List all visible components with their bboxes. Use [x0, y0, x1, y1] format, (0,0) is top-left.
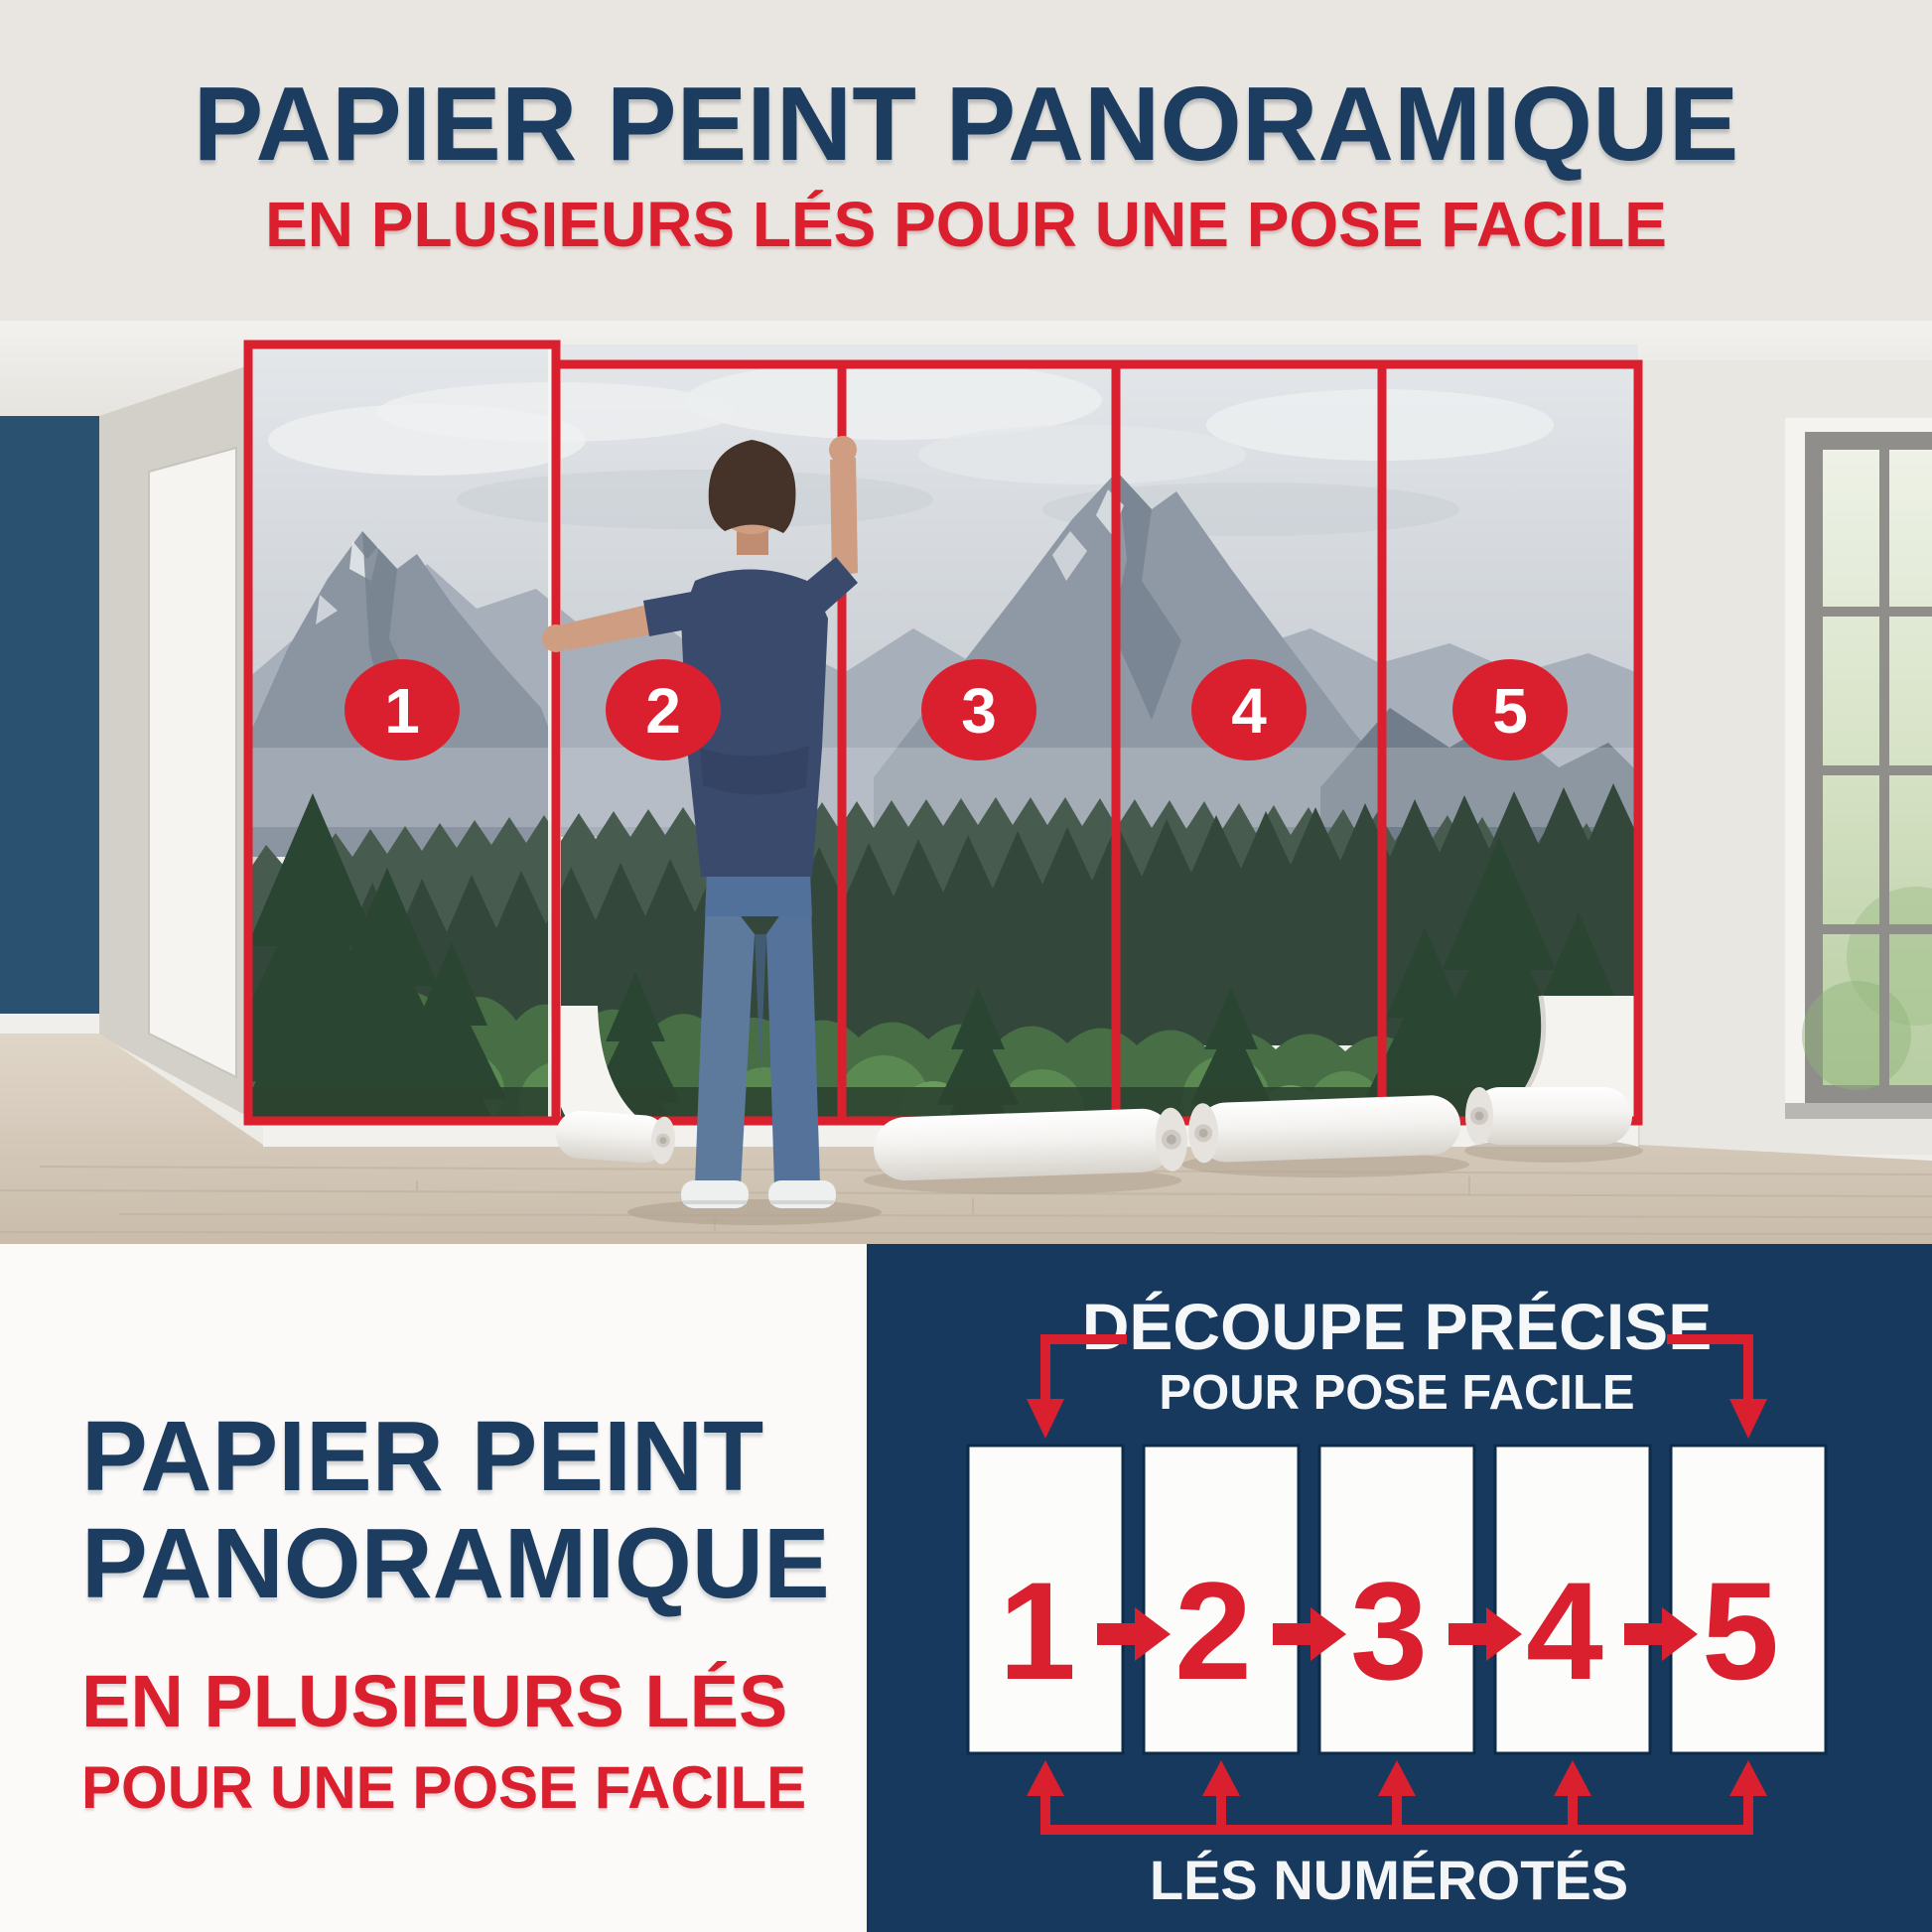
diagram-number: 1 — [999, 1553, 1076, 1709]
strip-number: 3 — [961, 675, 997, 747]
mural-landscape — [182, 341, 1662, 1230]
diagram-title: DÉCOUPE PRÉCISE — [1082, 1290, 1712, 1363]
strip-badge-4: 4 — [1191, 659, 1307, 760]
caption-title-line1: PAPIER PEINT — [81, 1403, 867, 1510]
person-shadow — [627, 1199, 882, 1225]
wallpaper-infographic: PAPIER PEINT PANORAMIQUE EN PLUSIEURS LÉ… — [0, 0, 1932, 1932]
caption-panel: PAPIER PEINT PANORAMIQUE EN PLUSIEURS LÉ… — [0, 1244, 867, 1932]
page-title: PAPIER PEINT PANORAMIQUE — [0, 0, 1932, 177]
room-scene: 1 2 3 4 5 — [0, 321, 1932, 1244]
wallpaper-roll — [1465, 1087, 1632, 1145]
baseboard-left — [0, 1014, 99, 1035]
diagram-number: 2 — [1174, 1553, 1252, 1709]
jeans-hip — [705, 873, 812, 916]
strip-badge-1: 1 — [345, 659, 460, 760]
right-hand — [542, 624, 570, 652]
caption-title-line2: PANORAMIQUE — [81, 1510, 867, 1617]
strip-number: 4 — [1231, 675, 1267, 747]
arrow-up-icon — [1202, 1760, 1240, 1830]
diagram-panel: DÉCOUPE PRÉCISE POUR POSE FACILE 1 2 3 4… — [867, 1244, 1932, 1932]
strip-badge-5: 5 — [1452, 659, 1568, 760]
haze — [248, 748, 1638, 827]
numbered-bracket — [1027, 1760, 1767, 1835]
door — [149, 448, 236, 1077]
strip-number: 5 — [1492, 675, 1528, 747]
strip-number: 1 — [384, 675, 420, 747]
diagram-number: 3 — [1350, 1553, 1428, 1709]
arrow-up-icon — [1554, 1760, 1591, 1830]
strip-number: 2 — [645, 675, 681, 747]
caption-subtitle-line2: POUR UNE POSE FACILE — [81, 1758, 867, 1818]
diagram-number: 4 — [1526, 1553, 1603, 1709]
caption-subtitle-line1: EN PLUSIEURS LÉS — [81, 1665, 867, 1738]
diagram-caption: LÉS NUMÉROTÉS — [1150, 1849, 1628, 1911]
wallpaper-roll — [1187, 1094, 1461, 1164]
header: PAPIER PEINT PANORAMIQUE EN PLUSIEURS LÉ… — [0, 0, 1932, 321]
wallpaper-roll — [873, 1107, 1188, 1181]
strips-diagram: DÉCOUPE PRÉCISE POUR POSE FACILE 1 2 3 4… — [867, 1244, 1932, 1932]
arrow-up-icon — [1027, 1760, 1064, 1830]
arrow-up-icon — [1378, 1760, 1416, 1830]
strip-badge-2: 2 — [606, 659, 721, 760]
diagram-subtitle: POUR POSE FACILE — [1159, 1366, 1634, 1420]
left-hand — [829, 436, 857, 464]
room-photo: 1 2 3 4 5 — [0, 321, 1932, 1244]
page-subtitle: EN PLUSIEURS LÉS POUR UNE POSE FACILE — [0, 193, 1932, 256]
window-sill — [1785, 1103, 1932, 1119]
window — [1785, 418, 1932, 1119]
strip-badge-3: 3 — [921, 659, 1036, 760]
accent-wall — [0, 416, 99, 1018]
arrow-up-icon — [1729, 1760, 1767, 1830]
diagram-number: 5 — [1702, 1553, 1779, 1709]
